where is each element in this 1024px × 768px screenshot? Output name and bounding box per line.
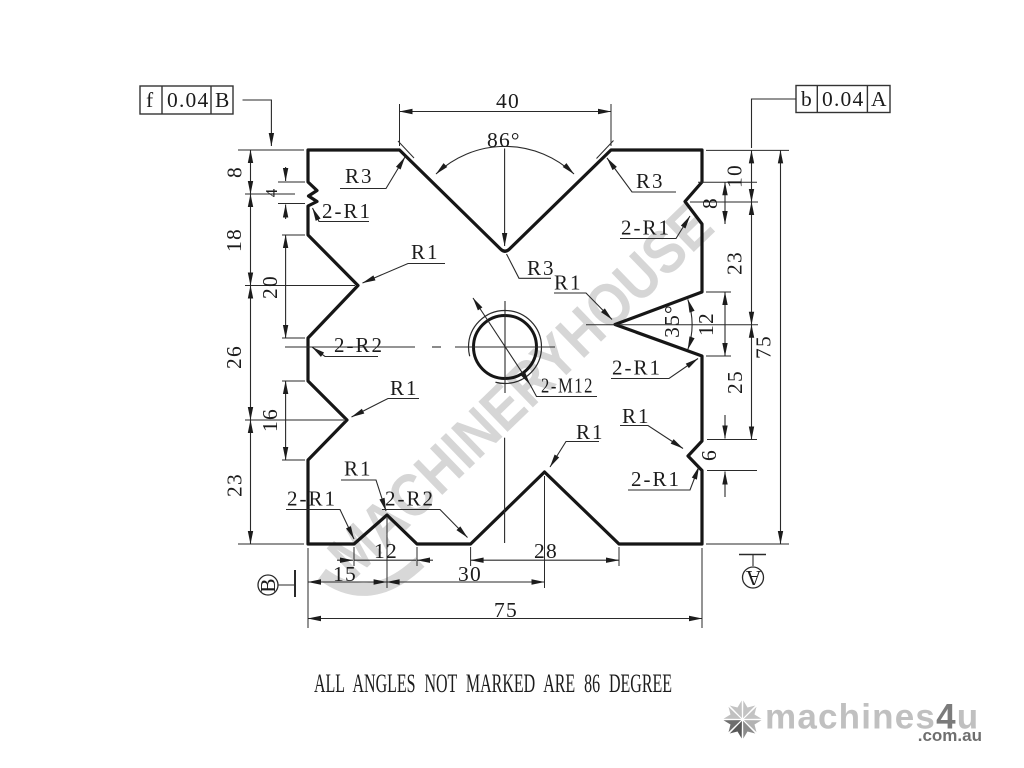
svg-text:2-R2: 2-R2	[334, 333, 384, 357]
svg-text:2-R1: 2-R1	[621, 216, 671, 240]
svg-text:75: 75	[752, 335, 776, 359]
svg-text:86°: 86°	[487, 128, 521, 152]
svg-text:40: 40	[496, 89, 520, 113]
svg-text:6: 6	[697, 449, 721, 461]
svg-text:18: 18	[222, 228, 246, 252]
svg-text:f: f	[146, 88, 154, 112]
svg-text:75: 75	[494, 598, 518, 622]
svg-text:R1: R1	[390, 376, 419, 400]
svg-text:b: b	[801, 87, 813, 111]
svg-text:23: 23	[223, 473, 247, 497]
svg-text:28: 28	[534, 539, 558, 563]
svg-text:10: 10	[723, 164, 747, 188]
svg-text:25: 25	[723, 370, 747, 394]
svg-text:2-M12: 2-M12	[541, 374, 594, 398]
svg-text:ALL ANGLES NOT MARKED ARE 86 D: ALL ANGLES NOT MARKED ARE 86 DEGREE	[314, 669, 672, 698]
svg-text:R1: R1	[622, 404, 651, 428]
svg-text:2-R1: 2-R1	[612, 356, 662, 380]
svg-text:16: 16	[258, 408, 282, 432]
svg-text:2-R1: 2-R1	[322, 199, 372, 223]
svg-text:12: 12	[374, 539, 398, 563]
svg-text:2-R1: 2-R1	[631, 467, 681, 491]
svg-text:30: 30	[458, 562, 482, 586]
svg-text:2-R1: 2-R1	[287, 487, 337, 511]
svg-text:A: A	[871, 87, 888, 111]
svg-text:R3: R3	[345, 164, 374, 188]
svg-text:26: 26	[222, 345, 246, 369]
svg-text:R3: R3	[527, 256, 556, 280]
svg-text:4: 4	[262, 188, 281, 197]
svg-text:23: 23	[723, 251, 747, 275]
svg-text:R1: R1	[576, 420, 605, 444]
svg-text:MACHINERYHOUSE: MACHINERYHOUSE	[315, 191, 726, 591]
svg-text:A: A	[745, 566, 762, 590]
svg-text:8: 8	[223, 166, 247, 178]
svg-text:15: 15	[333, 562, 357, 586]
svg-text:.com.au: .com.au	[918, 726, 982, 745]
svg-text:B: B	[256, 577, 280, 593]
svg-text:20: 20	[258, 275, 282, 299]
svg-text:2-R2: 2-R2	[385, 487, 435, 511]
svg-text:8: 8	[698, 197, 722, 209]
svg-text:R1: R1	[411, 240, 440, 264]
svg-text:12: 12	[694, 312, 718, 336]
svg-text:0.04: 0.04	[167, 88, 209, 112]
svg-text:R1: R1	[344, 457, 373, 481]
svg-text:R3: R3	[636, 169, 665, 193]
svg-text:0.04: 0.04	[822, 87, 864, 111]
svg-text:35°: 35°	[660, 304, 684, 338]
svg-text:B: B	[215, 88, 231, 112]
svg-text:R1: R1	[554, 271, 583, 295]
